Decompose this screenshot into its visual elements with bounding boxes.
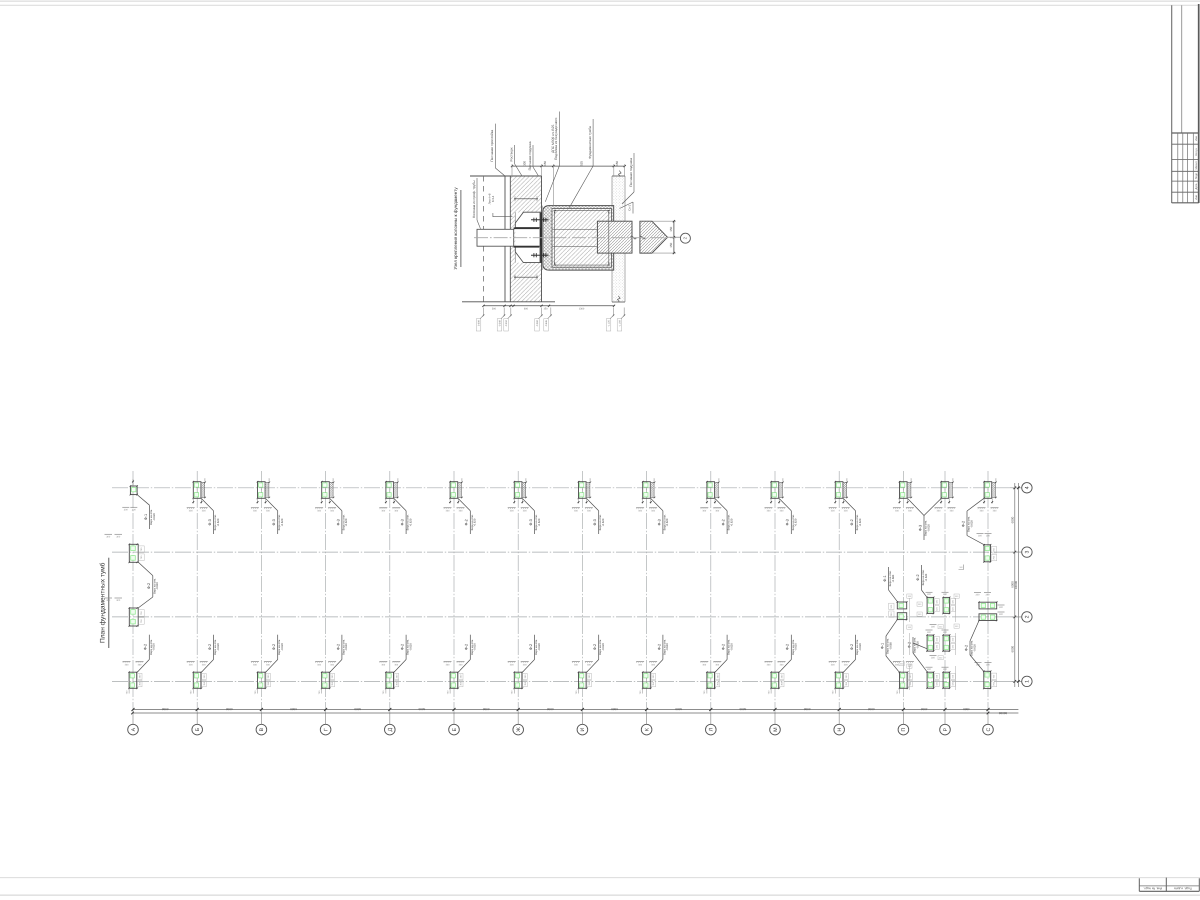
svg-text:Л: Л [709,728,715,731]
svg-text:300: 300 [106,535,111,538]
svg-text:ДПС М300 кл. В25: ДПС М300 кл. В25 [551,125,555,153]
svg-text:Инв. № подл.: Инв. № подл. [1143,887,1162,891]
svg-text:И: И [580,727,586,731]
svg-text:Песчаная подушка: Песчаная подушка [528,141,532,170]
svg-text:Б: Б [195,727,201,731]
svg-text:0.000: 0.000 [478,319,481,326]
svg-text:Песчаная прослойка: Песчаная прослойка [490,130,494,162]
svg-text:-0.620: -0.620 [602,518,605,526]
svg-text:150: 150 [615,161,619,166]
svg-text:300: 300 [978,535,983,538]
svg-text:300: 300 [986,593,991,596]
svg-text:Ж: Ж [516,727,522,732]
svg-text:-1.125: -1.125 [608,320,611,327]
svg-text:Ф-3: Ф-3 [786,519,790,525]
svg-text:300: 300 [999,613,1004,616]
svg-text:А: А [131,727,137,731]
svg-text:Инв: Инв [1195,195,1198,200]
svg-text:-0.620: -0.620 [538,518,541,526]
svg-text:Г: Г [323,728,329,731]
svg-text:К: К [644,728,650,731]
svg-text:-0.620: -0.620 [409,518,412,526]
svg-text:δ=14: δ=14 [491,195,495,202]
svg-text:Ф-3: Ф-3 [272,519,276,525]
svg-text:-0.680: -0.680 [889,642,892,650]
svg-text:6000: 6000 [418,707,425,711]
svg-text:300: 300 [116,535,121,538]
svg-text:6000: 6000 [803,707,810,711]
svg-text:300: 300 [927,668,932,671]
svg-text:4000: 4000 [963,707,970,711]
svg-text:-0.620: -0.620 [927,524,930,532]
svg-text:Ф-2: Ф-2 [529,644,533,650]
svg-text:600: 600 [524,308,529,311]
svg-text:-0.620: -0.620 [666,643,669,651]
svg-text:-0.620: -0.620 [602,643,605,651]
svg-text:Ф-2: Ф-2 [722,519,726,525]
svg-text:300: 300 [986,535,991,538]
svg-text:Ф-2: Ф-2 [593,644,597,650]
svg-text:150: 150 [669,242,673,247]
svg-text:18000: 18000 [1014,580,1018,589]
svg-text:-0.620: -0.620 [538,643,541,651]
svg-text:-0.620: -0.620 [474,643,477,651]
svg-text:-0.620: -0.620 [859,518,862,526]
svg-text:Ф-1: Ф-1 [880,643,884,649]
svg-text:-0.240: -0.240 [499,320,502,327]
svg-text:Ф-2: Ф-2 [336,644,340,650]
svg-text:Н: Н [837,727,843,731]
svg-text:150: 150 [543,161,547,166]
svg-text:Ф-2: Ф-2 [272,644,276,650]
svg-text:Ф-2: Ф-2 [786,644,790,650]
svg-text:Подп. и дата: Подп. и дата [1174,887,1192,891]
svg-text:Ф-2: Ф-2 [722,644,726,650]
svg-text:Узел крепления колонны к фунда: Узел крепления колонны к фундаменту [453,187,458,270]
svg-text:300: 300 [124,508,129,511]
svg-text:-0.620: -0.620 [795,643,798,651]
svg-text:-0.620: -0.620 [217,518,220,526]
svg-text:300: 300 [986,664,991,667]
svg-text:300: 300 [106,599,111,602]
svg-text:150: 150 [669,226,673,231]
svg-text:-0.620: -0.620 [281,643,284,651]
svg-text:Колонна из проф. трубы: Колонна из проф. трубы [472,180,476,218]
svg-text:Дата: Дата [1195,183,1198,189]
svg-text:-0.620: -0.620 [345,518,348,526]
svg-text:6000: 6000 [547,707,554,711]
svg-text:80000: 80000 [998,711,1007,715]
svg-text:Ф-3: Ф-3 [657,519,661,525]
svg-text:П: П [901,727,907,731]
svg-text:300: 300 [116,599,121,602]
svg-text:-0.620: -0.620 [925,573,928,581]
svg-text:1300: 1300 [579,308,585,311]
svg-text:Ростверк: Ростверк [510,147,514,161]
svg-text:300: 300 [523,161,527,166]
svg-text:6000: 6000 [354,707,361,711]
svg-text:Р: Р [943,727,949,731]
svg-text:Ф-2: Ф-2 [147,583,151,589]
svg-text:Ф-2: Ф-2 [465,644,469,650]
svg-text:Ф-3: Ф-3 [918,525,922,531]
svg-text:-0.620: -0.620 [153,513,156,521]
svg-text:150: 150 [543,308,548,311]
svg-text:-0.620: -0.620 [281,518,284,526]
svg-text:-0.250: -0.250 [505,320,508,327]
svg-text:Ск-1: Ск-1 [628,204,632,210]
svg-text:-0.620: -0.620 [666,518,669,526]
svg-text:Ф-1: Ф-1 [883,575,887,581]
svg-text:6000: 6000 [226,707,233,711]
svg-text:6000: 6000 [739,707,746,711]
svg-text:4000: 4000 [921,707,928,711]
svg-text:Фундаментная тумба: Фундаментная тумба [588,126,592,159]
svg-text:-0.445: -0.445 [545,320,548,327]
svg-text:6000: 6000 [675,707,682,711]
svg-text:300: 300 [927,631,932,634]
svg-text:Масшт: Масшт [1195,160,1198,169]
svg-text:Ф-3: Ф-3 [208,519,212,525]
svg-text:-0.380: -0.380 [536,320,539,327]
svg-text:-1.190: -1.190 [619,320,622,327]
svg-text:-0.620: -0.620 [973,644,976,652]
svg-text:-0.620: -0.620 [795,518,798,526]
svg-text:-0.620: -0.620 [153,643,156,651]
svg-text:Е: Е [452,727,458,731]
svg-text:Ф-2: Ф-2 [850,644,854,650]
svg-text:-0.620: -0.620 [970,520,973,528]
svg-text:Ф-3: Ф-3 [593,519,597,525]
svg-text:Подп: Подп [1195,173,1198,180]
svg-text:Ф-2: Ф-2 [144,644,148,650]
svg-text:Ф-2: Ф-2 [916,574,920,580]
svg-text:4: 4 [1025,486,1031,489]
svg-text:Ф-2: Ф-2 [964,645,968,651]
svg-text:-0.620: -0.620 [345,643,348,651]
svg-text:300: 300 [931,656,936,659]
svg-text:Ф-2: Ф-2 [961,521,965,527]
svg-text:6000: 6000 [611,707,618,711]
svg-text:6000: 6000 [482,707,489,711]
svg-text:Ф-2: Ф-2 [465,519,469,525]
svg-text:В: В [259,727,265,731]
svg-text:Ф-2: Ф-2 [657,644,661,650]
svg-text:2: 2 [1025,615,1031,618]
svg-text:М: М [773,727,779,731]
svg-text:300: 300 [943,668,948,671]
svg-text:300: 300 [999,606,1004,609]
svg-text:3: 3 [1025,551,1031,554]
svg-text:300: 300 [492,308,497,311]
svg-text:6000: 6000 [290,707,297,711]
svg-text:План фундаментных тумб: План фундаментных тумб [99,562,106,643]
svg-text:С: С [986,727,992,731]
svg-text:Д: Д [388,727,394,731]
svg-text:-0.620: -0.620 [474,518,477,526]
svg-text:-0.680: -0.680 [892,574,895,582]
svg-text:300: 300 [927,593,932,596]
svg-text:525: 525 [580,161,584,166]
svg-text:-0.620: -0.620 [409,643,412,651]
svg-text:6000: 6000 [1011,516,1015,523]
svg-text:-0.620: -0.620 [859,643,862,651]
svg-text:300: 300 [132,508,137,511]
svg-text:300: 300 [976,593,981,596]
svg-text:6000: 6000 [161,707,168,711]
svg-text:6000: 6000 [868,707,875,711]
svg-text:-0.620: -0.620 [156,582,159,590]
svg-text:Ф-2: Ф-2 [401,644,405,650]
svg-text:-0.620: -0.620 [730,518,733,526]
svg-text:Ф-2: Ф-2 [208,644,212,650]
svg-text:Ф-2: Ф-2 [850,519,854,525]
svg-text:Песчаная подушка: Песчаная подушка [629,158,633,187]
svg-text:6000: 6000 [1011,645,1015,652]
svg-text:300: 300 [943,593,948,596]
svg-text:Ф-1: Ф-1 [144,514,148,520]
svg-text:-0.620: -0.620 [217,643,220,651]
svg-text:Кол.уч: Кол.уч [1195,147,1198,155]
svg-text:1: 1 [1025,680,1031,683]
svg-text:300: 300 [931,625,936,628]
svg-text:Ф-3: Ф-3 [529,519,533,525]
svg-text:-0.620: -0.620 [730,643,733,651]
svg-text:Ф-3: Ф-3 [336,519,340,525]
svg-text:300: 300 [943,631,948,634]
svg-text:Ф-3: Ф-3 [401,519,405,525]
svg-text:Изм: Изм [1195,136,1198,141]
